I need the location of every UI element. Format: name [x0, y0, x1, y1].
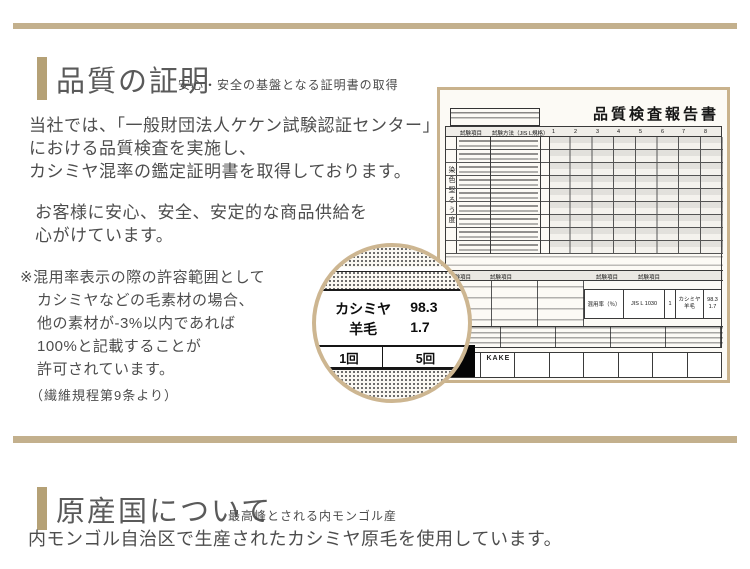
report-rows-result-grid — [549, 137, 723, 254]
mixture-value-cell: 98.3 1.7 — [703, 289, 722, 319]
origin-heading-bar — [37, 487, 47, 530]
report-col-item-label: 試験項目 — [596, 273, 618, 281]
report-col-number: 1 — [552, 129, 555, 135]
report-header-note-box — [450, 108, 540, 126]
page: 品質の証明 安心・安全の基盤となる証明書の取得 当社では、「一般財団法人ケケン試… — [0, 0, 750, 569]
sample-box — [688, 353, 722, 377]
tolerance-note-line-1: ※混用率表示の際の許容範囲として — [20, 266, 265, 289]
report-mixture-section: 混用率（％） JIS L 1030 1 カシミヤ 羊毛 98.3 1.7 — [446, 281, 723, 327]
report-second-header-row: 試験項目 試験項目 試験項目 試験項目 — [446, 271, 723, 281]
section-divider-rule — [13, 436, 737, 443]
quality-paragraph-1-line-1: 当社では、「一般財団法人ケケン試験認証センター」 — [29, 114, 440, 137]
report-middle-rows — [446, 254, 723, 271]
mixture-fiber-cell: カシミヤ 羊毛 — [675, 289, 704, 319]
inspection-report-image: 品質検査報告書 試験項目 試験方法（JIS L規格） 1 2 3 4 5 6 7… — [437, 87, 730, 383]
magnifier-fiber2-name: 羊毛 — [316, 319, 410, 339]
report-grid-line — [490, 137, 491, 254]
quality-paragraph-2-line-1: お客様に安心、安全、安定的な商品供給を — [35, 201, 368, 224]
magnifier-fiber1-name: カシミヤ — [316, 299, 410, 319]
report-col-number: 8 — [704, 129, 707, 135]
report-col-number: 3 — [596, 129, 599, 135]
report-col-method-label: 試験項目 — [490, 273, 512, 281]
report-col-method-label: 試験項目 — [638, 273, 660, 281]
mixture-value2: 1.7 — [709, 304, 717, 311]
mixture-method-cell: JIS L 1030 — [623, 289, 665, 319]
quality-paragraph-2: お客様に安心、安全、安定的な商品供給を 心がけています。 — [35, 201, 368, 247]
halftone-band-bottom — [316, 369, 468, 399]
sample-box — [584, 353, 619, 377]
kake-label: KAKE — [487, 355, 511, 362]
mixture-fiber2: 羊毛 — [684, 304, 695, 311]
report-table-header-row: 試験項目 試験方法（JIS L規格） 1 2 3 4 5 6 7 8 — [446, 127, 721, 137]
report-rows-label-scan-texture — [459, 137, 538, 254]
quality-heading-bar — [37, 57, 47, 100]
tolerance-note-line-4: 100%と記載することが — [20, 335, 265, 358]
report-col-number: 6 — [661, 129, 664, 135]
sample-box — [550, 353, 585, 377]
sample-box — [619, 353, 654, 377]
quality-paragraph-1: 当社では、「一般財団法人ケケン試験認証センター」 における品質検査を実施し、 カ… — [29, 114, 440, 183]
tolerance-note-source: （繊維規程第9条より） — [30, 385, 178, 404]
magnifier-row-wool: 羊毛 1.7 — [316, 319, 468, 339]
sample-box — [515, 353, 550, 377]
halftone-band-split-line — [316, 267, 468, 272]
halftone-band-top — [316, 247, 468, 291]
mixture-fiber1: カシミヤ — [678, 297, 700, 304]
report-bottom-rows — [446, 327, 723, 347]
quality-paragraph-2-line-2: 心がけています。 — [35, 224, 368, 247]
report-title: 品質検査報告書 — [593, 103, 719, 124]
report-col-item-label: 試験項目 — [460, 129, 482, 137]
tolerance-note-line-5: 許可されています。 — [20, 358, 265, 381]
magnifier-fiber2-value: 1.7 — [410, 319, 468, 339]
top-divider-rule — [13, 23, 737, 29]
tolerance-note: ※混用率表示の際の許容範囲として カシミヤなどの毛素材の場合、 他の素材が-3%… — [20, 266, 265, 381]
report-fastness-rows — [446, 137, 723, 254]
magnifier-fiber1-value: 98.3 — [410, 299, 468, 319]
magnifier-cell-1kai: 1回 — [316, 347, 383, 367]
tolerance-note-line-2: カシミヤなどの毛素材の場合、 — [20, 289, 265, 312]
report-grid-line — [549, 137, 550, 254]
magnifier-content: カシミヤ 98.3 羊毛 1.7 1回 5回 — [316, 247, 468, 399]
magnifier-callout: カシミヤ 98.3 羊毛 1.7 1回 5回 — [312, 243, 472, 403]
report-grid-line — [540, 137, 541, 254]
mixture-label-cell: 混用率（％） — [584, 289, 624, 319]
report-col-method-label: 試験方法（JIS L規格） — [492, 129, 549, 137]
quality-paragraph-1-line-2: における品質検査を実施し、 — [29, 137, 440, 160]
sample-box — [653, 353, 688, 377]
quality-section-subtitle: 安心・安全の基盤となる証明書の取得 — [178, 76, 399, 93]
magnifier-count-cells: 1回 5回 — [316, 345, 468, 369]
report-col-number: 4 — [617, 129, 620, 135]
report-col-number: 2 — [574, 129, 577, 135]
report-col-number: 7 — [682, 129, 685, 135]
sample-box: KAKE — [481, 353, 516, 377]
origin-section-subtitle: 最高峰とされる内モンゴル産 — [228, 507, 397, 524]
report-col-number: 5 — [639, 129, 642, 135]
quality-paragraph-1-line-3: カシミヤ混率の鑑定証明書を取得しております。 — [29, 160, 440, 183]
tolerance-note-line-3: 他の素材が-3%以内であれば — [20, 312, 265, 335]
report-sample-boxes-row: KAKE — [445, 352, 722, 378]
origin-body-text: 内モンゴル自治区で生産されたカシミヤ原毛を使用しています。 — [28, 528, 562, 551]
magnifier-row-cashmere: カシミヤ 98.3 — [316, 299, 468, 319]
report-table: 試験項目 試験方法（JIS L規格） 1 2 3 4 5 6 7 8 染色堅ろう… — [445, 126, 722, 348]
mixture-value1: 98.3 — [707, 297, 718, 304]
magnifier-cell-5kai: 5回 — [383, 347, 468, 367]
